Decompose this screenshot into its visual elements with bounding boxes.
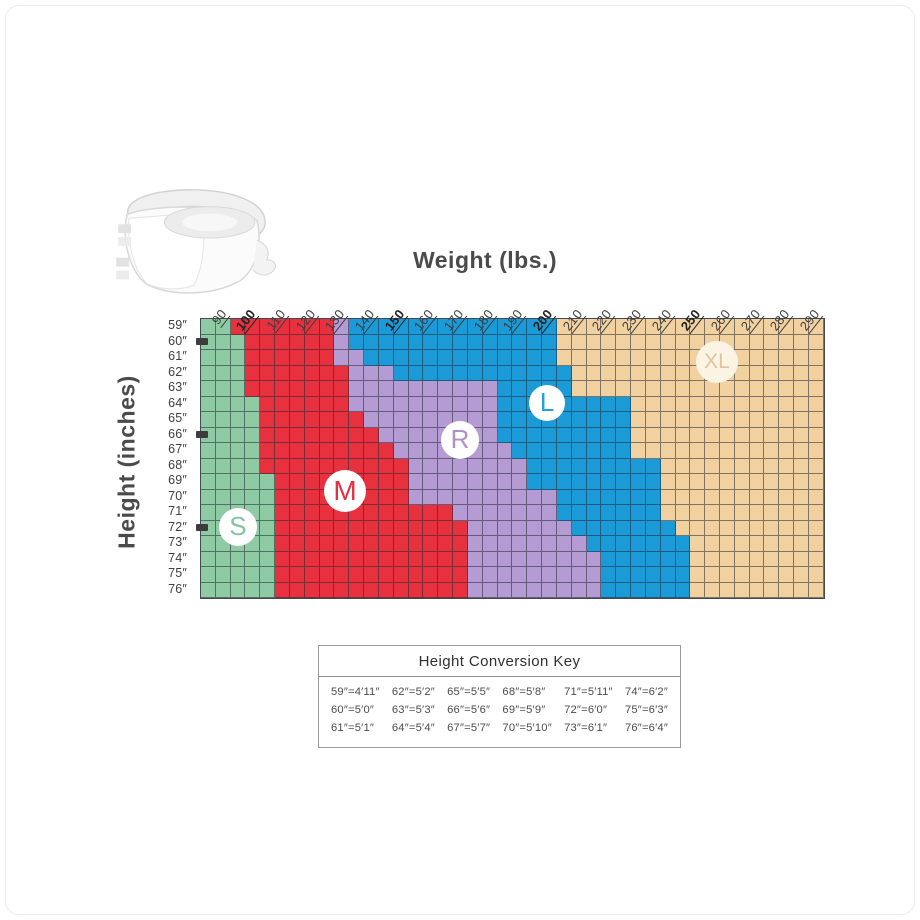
grid-cell-l xyxy=(587,428,602,444)
grid-cell-m xyxy=(423,583,438,599)
grid-cell-l xyxy=(498,366,513,382)
grid-cell-l xyxy=(498,335,513,351)
grid-cell-r xyxy=(587,567,602,583)
grid-cell-r xyxy=(468,490,483,506)
grid-cell-xl xyxy=(676,412,691,428)
grid-cell-l xyxy=(438,350,453,366)
grid-cell-xl xyxy=(661,381,676,397)
y-tick-label: 64″ xyxy=(146,396,194,412)
grid-cell-s xyxy=(245,567,260,583)
grid-cell-r xyxy=(468,552,483,568)
grid-cell-r xyxy=(527,536,542,552)
grid-cell-l xyxy=(646,536,661,552)
key-entry: 64″=5′4″ xyxy=(392,720,435,738)
grid-cell-m xyxy=(334,552,349,568)
grid-cell-m xyxy=(453,583,468,599)
grid-cell-m xyxy=(334,366,349,382)
grid-cell-xl xyxy=(794,428,809,444)
grid-cell-m xyxy=(409,505,424,521)
grid-cell-xl xyxy=(616,335,631,351)
grid-cell-r xyxy=(468,474,483,490)
grid-cell-l xyxy=(572,397,587,413)
grid-cell-s xyxy=(245,583,260,599)
grid-cell-m xyxy=(305,490,320,506)
key-column: 62″=5′2″63″=5′3″64″=5′4″ xyxy=(392,684,435,738)
grid-cell-m xyxy=(305,350,320,366)
grid-cell-xl xyxy=(631,381,646,397)
grid-cell-xl xyxy=(764,350,779,366)
grid-cell-xl xyxy=(690,428,705,444)
grid-cell-s xyxy=(216,381,231,397)
y-tick-label: 67″ xyxy=(146,442,194,458)
grid-row xyxy=(201,490,824,506)
grid-cell-xl xyxy=(676,335,691,351)
grid-cell-s xyxy=(216,366,231,382)
grid-cell-l xyxy=(394,335,409,351)
grid-cell-xl xyxy=(705,536,720,552)
grid-cell-xl xyxy=(705,490,720,506)
grid-cell-r xyxy=(379,428,394,444)
grid-cell-xl xyxy=(646,335,661,351)
grid-cell-xl xyxy=(646,381,661,397)
grid-cell-xl xyxy=(794,552,809,568)
grid-cell-r xyxy=(409,412,424,428)
grid-cell-xl xyxy=(690,381,705,397)
grid-cell-l xyxy=(557,474,572,490)
grid-cell-m xyxy=(409,521,424,537)
grid-cell-l xyxy=(557,490,572,506)
grid-cell-xl xyxy=(779,381,794,397)
grid-cell-r xyxy=(542,567,557,583)
grid-cell-l xyxy=(616,490,631,506)
grid-cell-m xyxy=(453,521,468,537)
grid-cell-l xyxy=(631,459,646,475)
grid-cell-l xyxy=(453,350,468,366)
grid-cell-l xyxy=(453,366,468,382)
key-entry: 62″=5′2″ xyxy=(392,684,435,702)
grid-cell-m xyxy=(364,536,379,552)
grid-cell-m xyxy=(290,459,305,475)
grid-cell-l xyxy=(527,335,542,351)
grid-cell-m xyxy=(438,552,453,568)
grid-cell-s xyxy=(216,459,231,475)
grid-cell-xl xyxy=(601,335,616,351)
grid-cell-xl xyxy=(764,335,779,351)
grid-cell-s xyxy=(260,505,275,521)
key-entry: 67″=5′7″ xyxy=(447,720,490,738)
key-column: 74″=6′2″75″=6′3″76″=6′4″ xyxy=(625,684,668,738)
grid-cell-m xyxy=(320,521,335,537)
grid-cell-xl xyxy=(572,381,587,397)
grid-cell-l xyxy=(587,474,602,490)
grid-cell-xl xyxy=(809,459,824,475)
grid-cell-xl xyxy=(764,505,779,521)
grid-cell-s xyxy=(245,412,260,428)
grid-cell-xl xyxy=(809,583,824,599)
grid-cell-xl xyxy=(631,428,646,444)
grid-cell-s xyxy=(201,552,216,568)
grid-cell-l xyxy=(572,505,587,521)
grid-cell-m xyxy=(305,459,320,475)
grid-cell-s xyxy=(231,428,246,444)
grid-cell-m xyxy=(245,366,260,382)
grid-cell-xl xyxy=(616,381,631,397)
grid-cell-xl xyxy=(661,397,676,413)
grid-cell-xl xyxy=(750,567,765,583)
key-entry: 70″=5′10″ xyxy=(502,720,551,738)
y-tick-label: 73″ xyxy=(146,535,194,551)
grid-cell-xl xyxy=(601,366,616,382)
grid-cell-l xyxy=(498,381,513,397)
grid-cell-s xyxy=(245,443,260,459)
grid-cell-xl xyxy=(705,567,720,583)
grid-cell-xl xyxy=(750,583,765,599)
grid-cell-r xyxy=(483,397,498,413)
grid-cell-l xyxy=(616,521,631,537)
grid-cell-m xyxy=(379,552,394,568)
grid-cell-xl xyxy=(646,366,661,382)
grid-cell-r xyxy=(438,381,453,397)
grid-cell-xl xyxy=(794,474,809,490)
grid-cell-l xyxy=(394,366,409,382)
grid-cell-m xyxy=(409,552,424,568)
grid-cell-r xyxy=(349,350,364,366)
grid-cell-m xyxy=(245,381,260,397)
grid-cell-xl xyxy=(587,366,602,382)
grid-cell-r xyxy=(379,412,394,428)
grid-cell-r xyxy=(483,412,498,428)
grid-cell-xl xyxy=(779,412,794,428)
grid-cell-s xyxy=(245,428,260,444)
grid-cell-r xyxy=(587,583,602,599)
grid-cell-l xyxy=(587,505,602,521)
grid-cell-l xyxy=(527,366,542,382)
grid-cell-m xyxy=(290,583,305,599)
y-axis-tick-labels: 59″60″61″62″63″64″65″66″67″68″69″70″71″7… xyxy=(146,318,194,597)
grid-cell-l xyxy=(587,443,602,459)
grid-cell-l xyxy=(468,366,483,382)
grid-cell-m xyxy=(290,350,305,366)
size-badge-xl: XL xyxy=(696,341,738,383)
y-tick-label: 72″ xyxy=(146,520,194,536)
grid-cell-m xyxy=(320,350,335,366)
grid-cell-r xyxy=(423,474,438,490)
grid-cell-xl xyxy=(750,474,765,490)
grid-cell-m xyxy=(260,397,275,413)
grid-cell-l xyxy=(542,459,557,475)
grid-cell-r xyxy=(364,397,379,413)
grid-cell-m xyxy=(290,521,305,537)
grid-cell-xl xyxy=(764,474,779,490)
grid-cell-l xyxy=(542,443,557,459)
grid-cell-m xyxy=(334,443,349,459)
grid-cell-r xyxy=(364,412,379,428)
grid-cell-r xyxy=(453,490,468,506)
grid-row xyxy=(201,428,824,444)
grid-cell-xl xyxy=(809,536,824,552)
grid-cell-r xyxy=(557,583,572,599)
grid-cell-r xyxy=(512,552,527,568)
grid-cell-m xyxy=(334,567,349,583)
grid-cell-l xyxy=(587,490,602,506)
key-entry: 65″=5′5″ xyxy=(447,684,490,702)
grid-cell-l xyxy=(646,567,661,583)
grid-cell-xl xyxy=(750,521,765,537)
grid-cell-xl xyxy=(646,412,661,428)
grid-cell-m xyxy=(275,490,290,506)
grid-cell-m xyxy=(349,412,364,428)
y-tick-label: 63″ xyxy=(146,380,194,396)
grid-cell-l xyxy=(601,474,616,490)
grid-cell-xl xyxy=(735,397,750,413)
grid-cell-l xyxy=(542,474,557,490)
grid-cell-r xyxy=(483,567,498,583)
grid-cell-s xyxy=(201,443,216,459)
grid-cell-m xyxy=(260,443,275,459)
grid-cell-s xyxy=(201,505,216,521)
grid-cell-r xyxy=(409,397,424,413)
grid-cell-xl xyxy=(750,366,765,382)
grid-cell-m xyxy=(290,428,305,444)
grid-cell-r xyxy=(409,459,424,475)
grid-cell-l xyxy=(631,536,646,552)
grid-cell-l xyxy=(676,567,691,583)
grid-cell-s xyxy=(260,567,275,583)
grid-cell-m xyxy=(320,459,335,475)
grid-cell-l xyxy=(631,505,646,521)
grid-cell-xl xyxy=(616,366,631,382)
grid-cell-m xyxy=(320,536,335,552)
grid-cell-l xyxy=(631,490,646,506)
grid-cell-l xyxy=(423,366,438,382)
grid-cell-l xyxy=(572,459,587,475)
grid-cell-l xyxy=(483,335,498,351)
grid-cell-xl xyxy=(705,443,720,459)
grid-cell-r xyxy=(483,583,498,599)
grid-cell-s xyxy=(216,474,231,490)
grid-cell-s xyxy=(201,567,216,583)
grid-cell-l xyxy=(527,350,542,366)
grid-cell-xl xyxy=(690,459,705,475)
grid-cell-s xyxy=(201,350,216,366)
grid-cell-xl xyxy=(735,567,750,583)
grid-cell-r xyxy=(527,521,542,537)
grid-cell-s xyxy=(216,428,231,444)
grid-cell-xl xyxy=(764,366,779,382)
y-tick-label: 74″ xyxy=(146,551,194,567)
grid-cell-xl xyxy=(587,350,602,366)
grid-cell-xl xyxy=(750,428,765,444)
grid-cell-xl xyxy=(794,567,809,583)
grid-cell-m xyxy=(364,428,379,444)
grid-cell-r xyxy=(542,552,557,568)
grid-cell-l xyxy=(616,412,631,428)
grid-cell-s xyxy=(231,366,246,382)
grid-cell-l xyxy=(601,397,616,413)
grid-cell-xl xyxy=(557,335,572,351)
grid-cell-s xyxy=(245,459,260,475)
grid-cell-xl xyxy=(750,397,765,413)
grid-cell-m xyxy=(379,505,394,521)
grid-cell-xl xyxy=(690,521,705,537)
grid-cell-r xyxy=(394,381,409,397)
grid-cell-m xyxy=(334,583,349,599)
y-tick-label: 75″ xyxy=(146,566,194,582)
grid-cell-m xyxy=(305,567,320,583)
key-entry: 73″=6′1″ xyxy=(564,720,613,738)
grid-cell-l xyxy=(512,443,527,459)
grid-cell-l xyxy=(394,350,409,366)
grid-cell-m xyxy=(260,412,275,428)
grid-cell-m xyxy=(423,505,438,521)
grid-cell-xl xyxy=(750,381,765,397)
grid-cell-xl xyxy=(720,583,735,599)
grid-cell-s xyxy=(216,443,231,459)
grid-cell-m xyxy=(394,474,409,490)
grid-cell-xl xyxy=(809,474,824,490)
grid-cell-xl xyxy=(587,381,602,397)
grid-cell-m xyxy=(245,350,260,366)
grid-cell-l xyxy=(616,428,631,444)
grid-cell-m xyxy=(290,567,305,583)
grid-cell-xl xyxy=(779,459,794,475)
grid-cell-r xyxy=(512,567,527,583)
grid-cell-r xyxy=(409,474,424,490)
key-entry: 69″=5′9″ xyxy=(502,702,551,720)
grid-cell-xl xyxy=(779,397,794,413)
grid-cell-r xyxy=(512,583,527,599)
grid-cell-xl xyxy=(764,459,779,475)
grid-cell-m xyxy=(275,366,290,382)
grid-cell-xl xyxy=(646,443,661,459)
grid-cell-xl xyxy=(809,428,824,444)
grid-cell-s xyxy=(216,397,231,413)
grid-cell-xl xyxy=(764,567,779,583)
grid-cell-m xyxy=(423,521,438,537)
grid-cell-l xyxy=(409,350,424,366)
grid-cell-r xyxy=(512,521,527,537)
size-badge-l: L xyxy=(529,385,565,421)
grid-cell-xl xyxy=(750,490,765,506)
y-axis-title: Height (inches) xyxy=(114,375,141,549)
grid-cell-l xyxy=(631,567,646,583)
grid-cell-r xyxy=(453,474,468,490)
grid-cell-r xyxy=(364,366,379,382)
grid-cell-m xyxy=(305,443,320,459)
grid-cell-xl xyxy=(779,583,794,599)
grid-cell-l xyxy=(646,474,661,490)
grid-cell-l xyxy=(616,583,631,599)
grid-cell-xl xyxy=(750,335,765,351)
grid-cell-r xyxy=(557,521,572,537)
grid-cell-r xyxy=(498,474,513,490)
grid-cell-xl xyxy=(735,490,750,506)
grid-cell-xl xyxy=(750,536,765,552)
grid-cell-l xyxy=(661,567,676,583)
grid-cell-xl xyxy=(779,552,794,568)
grid-cell-l xyxy=(572,490,587,506)
grid-cell-r xyxy=(572,552,587,568)
grid-cell-m xyxy=(305,366,320,382)
grid-cell-xl xyxy=(676,366,691,382)
grid-cell-xl xyxy=(661,459,676,475)
grid-cell-l xyxy=(676,536,691,552)
grid-cell-s xyxy=(216,583,231,599)
grid-cell-s xyxy=(216,335,231,351)
grid-cell-s xyxy=(201,459,216,475)
key-entry: 75″=6′3″ xyxy=(625,702,668,720)
grid-cell-r xyxy=(498,583,513,599)
grid-cell-l xyxy=(557,505,572,521)
grid-cell-m xyxy=(260,428,275,444)
grid-cell-xl xyxy=(764,428,779,444)
grid-cell-m xyxy=(364,490,379,506)
key-entry: 68″=5′8″ xyxy=(502,684,551,702)
grid-cell-s xyxy=(245,552,260,568)
grid-cell-r xyxy=(483,474,498,490)
grid-cell-m xyxy=(394,459,409,475)
grid-cell-m xyxy=(305,397,320,413)
grid-cell-xl xyxy=(720,536,735,552)
grid-cell-s xyxy=(231,397,246,413)
grid-cell-xl xyxy=(705,428,720,444)
grid-cell-l xyxy=(557,428,572,444)
grid-cell-xl xyxy=(572,366,587,382)
grid-cell-l xyxy=(601,521,616,537)
grid-cell-l xyxy=(616,567,631,583)
grid-cell-l xyxy=(379,335,394,351)
grid-cell-m xyxy=(305,505,320,521)
grid-cell-r xyxy=(468,397,483,413)
grid-cell-xl xyxy=(601,381,616,397)
grid-cell-xl xyxy=(676,490,691,506)
grid-cell-r xyxy=(453,397,468,413)
grid-cell-l xyxy=(512,428,527,444)
grid-cell-xl xyxy=(676,443,691,459)
grid-cell-m xyxy=(349,443,364,459)
grid-cell-r xyxy=(453,505,468,521)
grid-cell-m xyxy=(290,474,305,490)
grid-cell-m xyxy=(438,505,453,521)
grid-cell-xl xyxy=(794,412,809,428)
grid-cell-l xyxy=(364,335,379,351)
grid-cell-l xyxy=(572,521,587,537)
grid-cell-xl xyxy=(809,505,824,521)
grid-cell-r xyxy=(498,567,513,583)
grid-cell-xl xyxy=(676,459,691,475)
grid-cell-r xyxy=(498,459,513,475)
grid-cell-m xyxy=(394,583,409,599)
grid-cell-s xyxy=(231,474,246,490)
grid-cell-l xyxy=(646,583,661,599)
grid-cell-m xyxy=(320,335,335,351)
grid-cell-r xyxy=(394,397,409,413)
grid-cell-l xyxy=(557,459,572,475)
grid-cell-m xyxy=(409,567,424,583)
grid-row xyxy=(201,583,824,599)
grid-cell-xl xyxy=(705,459,720,475)
grid-cell-r xyxy=(498,505,513,521)
grid-cell-m xyxy=(305,552,320,568)
size-chart-image: Weight (lbs.) Height (inches) 59″60″61″6… xyxy=(0,0,920,920)
grid-cell-xl xyxy=(794,459,809,475)
key-column: 65″=5′5″66″=5′6″67″=5′7″ xyxy=(447,684,490,738)
grid-cell-m xyxy=(290,536,305,552)
grid-cell-m xyxy=(364,474,379,490)
grid-cell-s xyxy=(201,474,216,490)
grid-cell-s xyxy=(260,536,275,552)
grid-cell-r xyxy=(379,397,394,413)
